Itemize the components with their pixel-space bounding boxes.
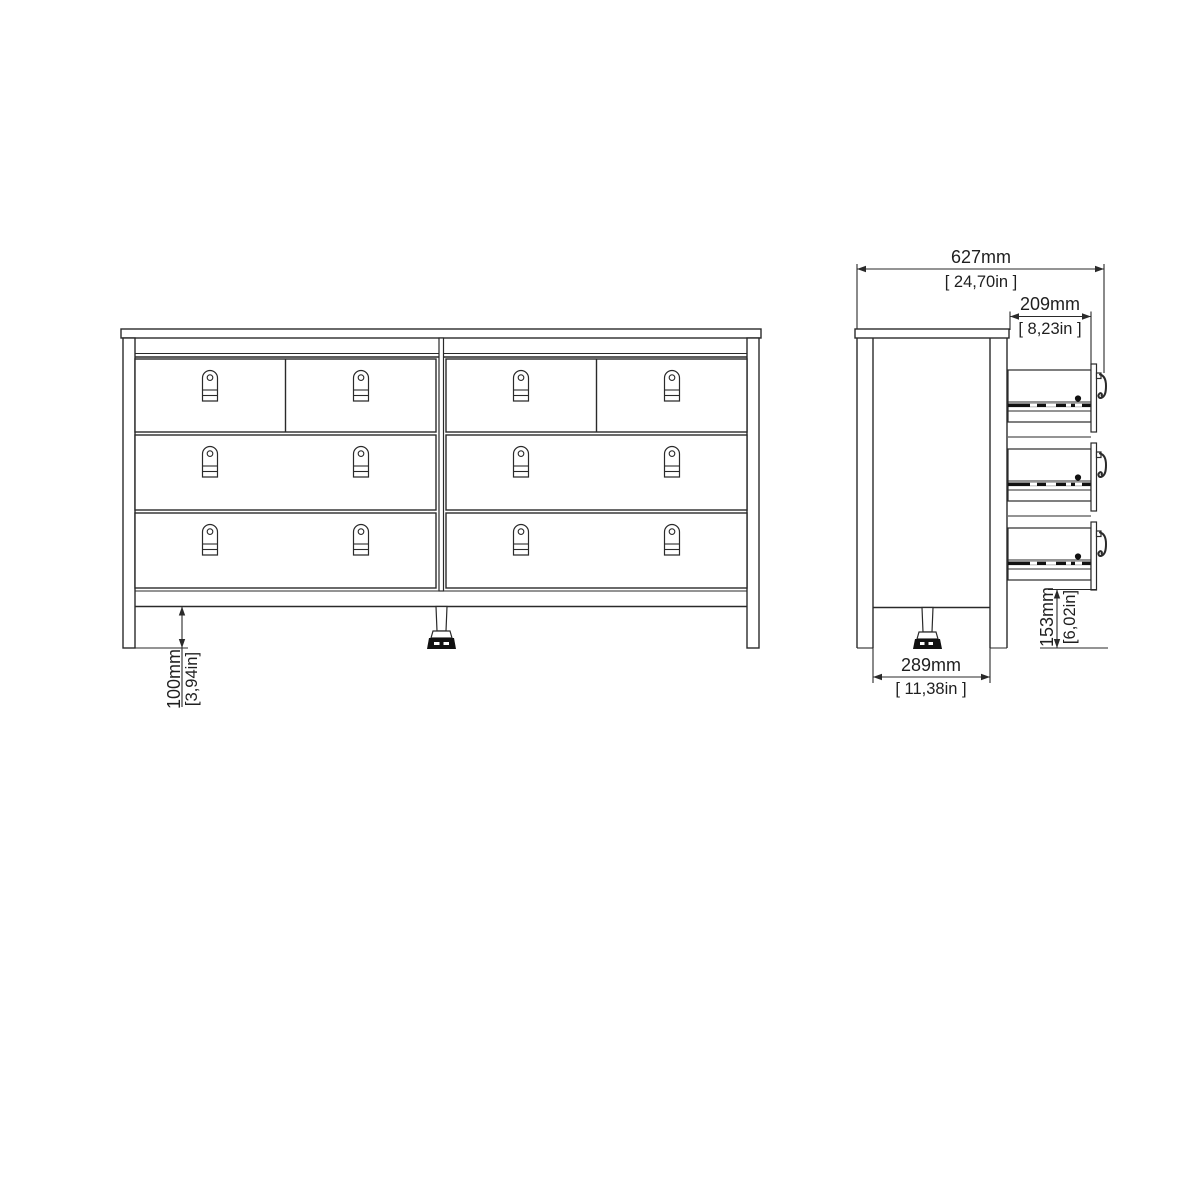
drawer-pull-icon [203, 447, 218, 478]
dim-front-leg-height: 100mm [3,94in] [135, 607, 201, 710]
drawer-front [135, 513, 436, 588]
dresser-technical-drawing: 100mm [3,94in] [0, 0, 1200, 1200]
drawer-pull-icon [354, 447, 369, 478]
side-open-drawers [1008, 364, 1106, 590]
arrowhead-right-icon [1095, 266, 1104, 272]
front-top-board [121, 329, 761, 338]
drawer-pull-icon [354, 371, 369, 402]
dim-side-bottom-clearance: 153mm [6,02in] [1037, 587, 1108, 648]
drawer-pull-icon [203, 371, 218, 402]
drawer-pull-icon [514, 371, 529, 402]
bottom-clearance-in-label: [6,02in] [1061, 590, 1079, 644]
drawer-front [135, 435, 436, 510]
leg-height-in-label: [3,94in] [183, 652, 201, 706]
arrowhead-right-icon [1082, 313, 1091, 319]
front-left-side-panel [123, 338, 135, 648]
total-depth-mm-label: 627mm [951, 247, 1011, 267]
arrowhead-left-icon [1010, 313, 1019, 319]
base-depth-in-label: [ 11,38in ] [895, 680, 966, 698]
side-drawer-unit [1008, 522, 1106, 590]
arrowhead-left-icon [857, 266, 866, 272]
drawer-pull-icon [514, 525, 529, 556]
leg-height-mm-label: 100mm [164, 649, 184, 709]
side-drawer-unit [1008, 443, 1106, 511]
dim-side-base-depth: 289mm [ 11,38in ] [873, 648, 990, 698]
base-depth-mm-label: 289mm [901, 655, 961, 675]
front-bottom-rail [135, 591, 747, 607]
arrowhead-left-icon [873, 674, 882, 680]
technical-drawing-page: 100mm [3,94in] [0, 0, 1200, 1200]
side-drawer-unit [1008, 364, 1106, 432]
top-depth-mm-label: 209mm [1020, 294, 1080, 314]
drawer-front [446, 435, 747, 510]
drawer-pull-icon [203, 525, 218, 556]
front-center-foot [427, 607, 456, 650]
arrowhead-right-icon [981, 674, 990, 680]
front-view: 100mm [3,94in] [121, 329, 761, 709]
side-view: 627mm [ 24,70in ] 209mm [ 8,23in ] 289mm… [855, 247, 1108, 698]
drawer-pull-icon [514, 447, 529, 478]
arrowhead-up-icon [179, 607, 185, 616]
side-top-board [855, 329, 1009, 338]
side-center-foot [913, 608, 942, 650]
front-right-side-panel [747, 338, 759, 648]
total-depth-in-label: [ 24,70in ] [945, 273, 1017, 291]
drawer-pull-icon [665, 525, 680, 556]
drawer-pull-icon [665, 447, 680, 478]
drawer-pull-icon [665, 371, 680, 402]
drawer-front [446, 513, 747, 588]
arrowhead-down-icon [179, 639, 185, 648]
drawer-pull-icon [354, 525, 369, 556]
top-depth-in-label: [ 8,23in ] [1018, 320, 1081, 338]
bottom-clearance-mm-label: 153mm [1037, 587, 1057, 647]
dim-side-top-depth: 209mm [ 8,23in ] [1010, 294, 1091, 365]
front-center-divider [439, 338, 444, 591]
side-body [857, 338, 1007, 648]
